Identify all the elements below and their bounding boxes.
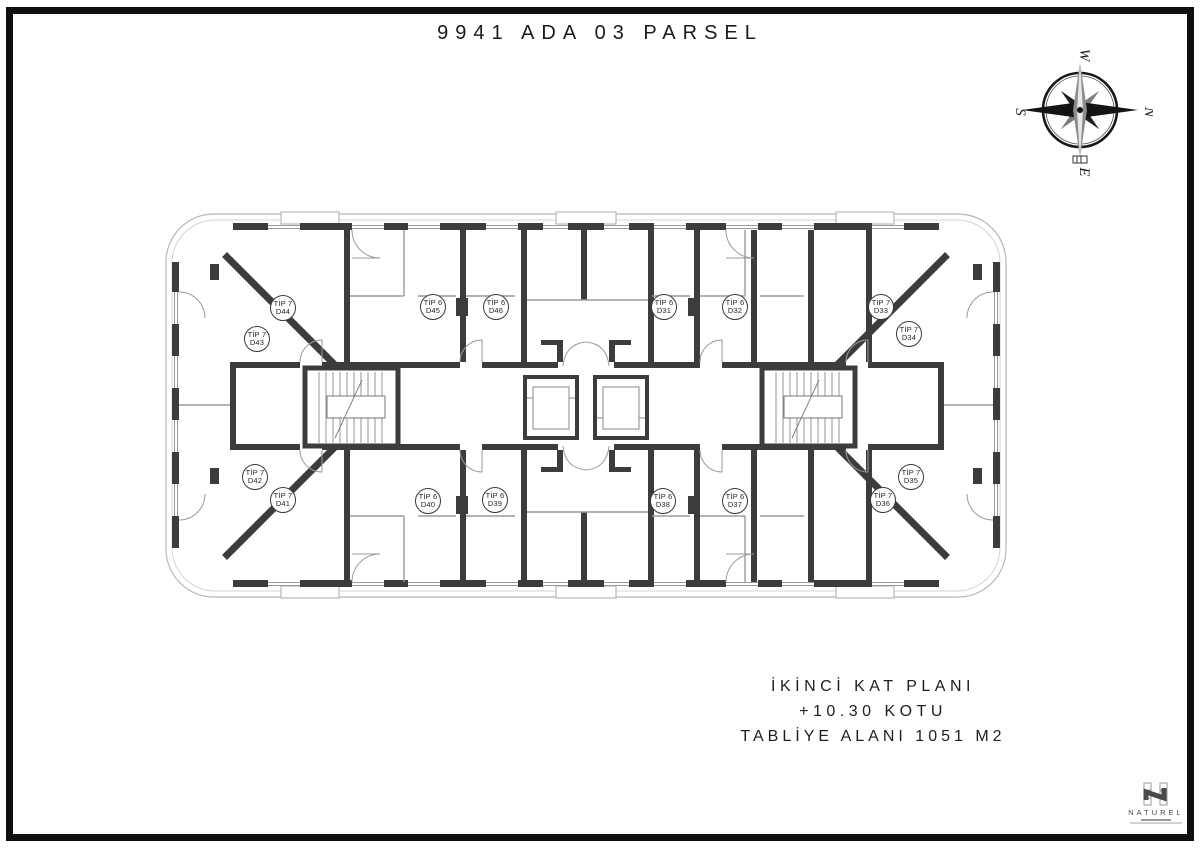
elevation-level: +10.30 KOTU (712, 703, 1034, 721)
logo-address-line (1130, 822, 1182, 824)
unit-label-D43: TİP 7D43 (244, 326, 270, 352)
unit-label-D34: TİP 7D34 (896, 321, 922, 347)
slab-area: TABLİYE ALANI 1051 M2 (712, 728, 1034, 746)
unit-label-D36: TİP 7D36 (870, 487, 896, 513)
unit-label-D38: TİP 6D38 (650, 488, 676, 514)
unit-label-D46: TİP 6D46 (483, 294, 509, 320)
drawing-sheet: 9941 ADA 03 PARSEL W N S E (0, 0, 1200, 848)
unit-label-D31: TİP 6D31 (651, 294, 677, 320)
plan-info-block: İKİNCİ KAT PLANI +10.30 KOTU TABLİYE ALA… (712, 678, 1034, 746)
unit-label-D37: TİP 6D37 (722, 488, 748, 514)
company-logo: NATUREL (1118, 782, 1194, 824)
unit-label-D33: TİP 7D33 (868, 294, 894, 320)
unit-label-D41: TİP 7D41 (270, 487, 296, 513)
naturel-logo-icon (1143, 782, 1169, 806)
logo-tagline-line (1141, 819, 1171, 821)
floor-name: İKİNCİ KAT PLANI (712, 678, 1034, 696)
unit-label-D42: TİP 7D42 (242, 464, 268, 490)
logo-name: NATUREL (1118, 808, 1194, 817)
unit-label-D32: TİP 6D32 (722, 294, 748, 320)
unit-label-D45: TİP 6D45 (420, 294, 446, 320)
unit-label-D40: TİP 6D40 (415, 488, 441, 514)
unit-label-D44: TİP 7D44 (270, 295, 296, 321)
unit-label-D39: TİP 6D39 (482, 487, 508, 513)
unit-label-D35: TİP 7D35 (898, 464, 924, 490)
